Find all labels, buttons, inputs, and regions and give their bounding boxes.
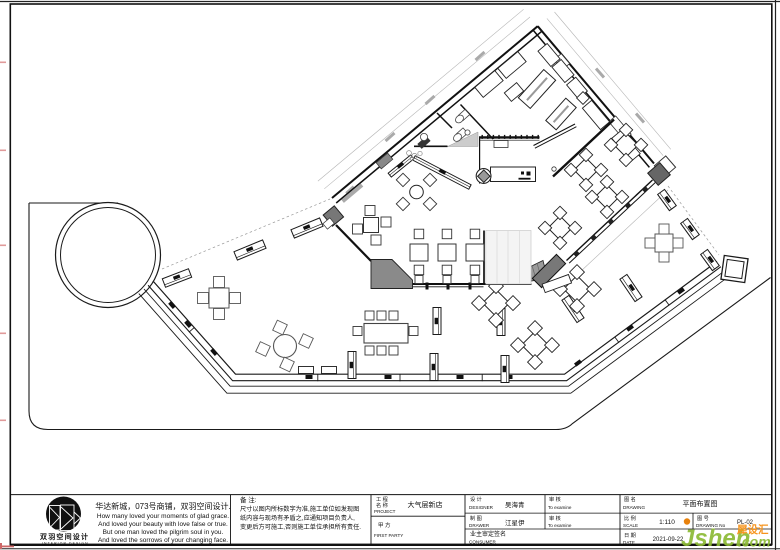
svg-text:图 名: 图 名: [624, 495, 636, 503]
svg-text:But one man loved the pilgrim: But one man loved the pilgrim soul in yo…: [103, 529, 224, 536]
svg-text:CONSUMER: CONSUMER: [469, 540, 496, 545]
svg-text:名 称: 名 称: [376, 501, 388, 509]
svg-text:尺寸以图内所标数字为准,施工单位如发现图: 尺寸以图内所标数字为准,施工单位如发现图: [240, 505, 359, 513]
svg-text:变更后方可施工,否则施工单位承担所有责任.: 变更后方可施工,否则施工单位承担所有责任.: [240, 523, 361, 531]
svg-text:DESIGNER: DESIGNER: [469, 505, 494, 510]
svg-text:图 号: 图 号: [697, 515, 709, 522]
svg-text:And loved the sorrows of your: And loved the sorrows of your changing f…: [98, 537, 228, 544]
svg-text:SCALE: SCALE: [623, 523, 638, 528]
svg-text:How many loved your moments of: How many loved your moments of glad grac…: [97, 513, 229, 520]
svg-text:工 程: 工 程: [376, 495, 388, 503]
svg-text:甲 方: 甲 方: [378, 521, 391, 529]
svg-text:备 注:: 备 注:: [240, 495, 257, 504]
svg-text:犀设汇: 犀设汇: [736, 523, 769, 536]
svg-text:设 计: 设 计: [470, 495, 482, 503]
svg-text:And loved your beauty with lov: And loved your beauty with love false or…: [98, 521, 228, 528]
svg-text:2021-09-22: 2021-09-22: [653, 537, 684, 543]
svg-text:制 图: 制 图: [470, 514, 482, 522]
svg-text:1:110: 1:110: [659, 519, 675, 526]
svg-text:双羽空间设计: 双羽空间设计: [40, 532, 89, 541]
svg-text:业主审定签名: 业主审定签名: [470, 530, 506, 538]
svg-text:审 核: 审 核: [549, 514, 561, 522]
svg-text:DATE: DATE: [623, 540, 635, 545]
svg-text:INTERIOR DESIGN: INTERIOR DESIGN: [42, 542, 89, 546]
svg-text:比 例: 比 例: [624, 514, 636, 522]
svg-text:吴海青: 吴海青: [505, 500, 525, 509]
svg-text:DRAWER: DRAWER: [469, 523, 490, 528]
svg-text:To examine: To examine: [548, 505, 572, 510]
svg-text:华达新城，073号商铺，双羽空间设计.: 华达新城，073号商铺，双羽空间设计.: [95, 501, 231, 511]
svg-text:PROJECT: PROJECT: [374, 509, 396, 514]
svg-text:大气层新店: 大气层新店: [408, 500, 443, 509]
svg-text:日 期: 日 期: [624, 532, 636, 539]
svg-text:江星伊: 江星伊: [505, 518, 525, 527]
svg-text:To examine: To examine: [548, 523, 572, 528]
svg-text:纸内容与现场有矛盾之,应通知项目负责人,: 纸内容与现场有矛盾之,应通知项目负责人,: [240, 514, 355, 522]
svg-text:FIRST PARTY: FIRST PARTY: [374, 533, 403, 538]
svg-text:DRAWING: DRAWING: [623, 505, 645, 510]
svg-text:平面布置图: 平面布置图: [683, 499, 718, 508]
svg-text:审 核: 审 核: [549, 495, 561, 503]
